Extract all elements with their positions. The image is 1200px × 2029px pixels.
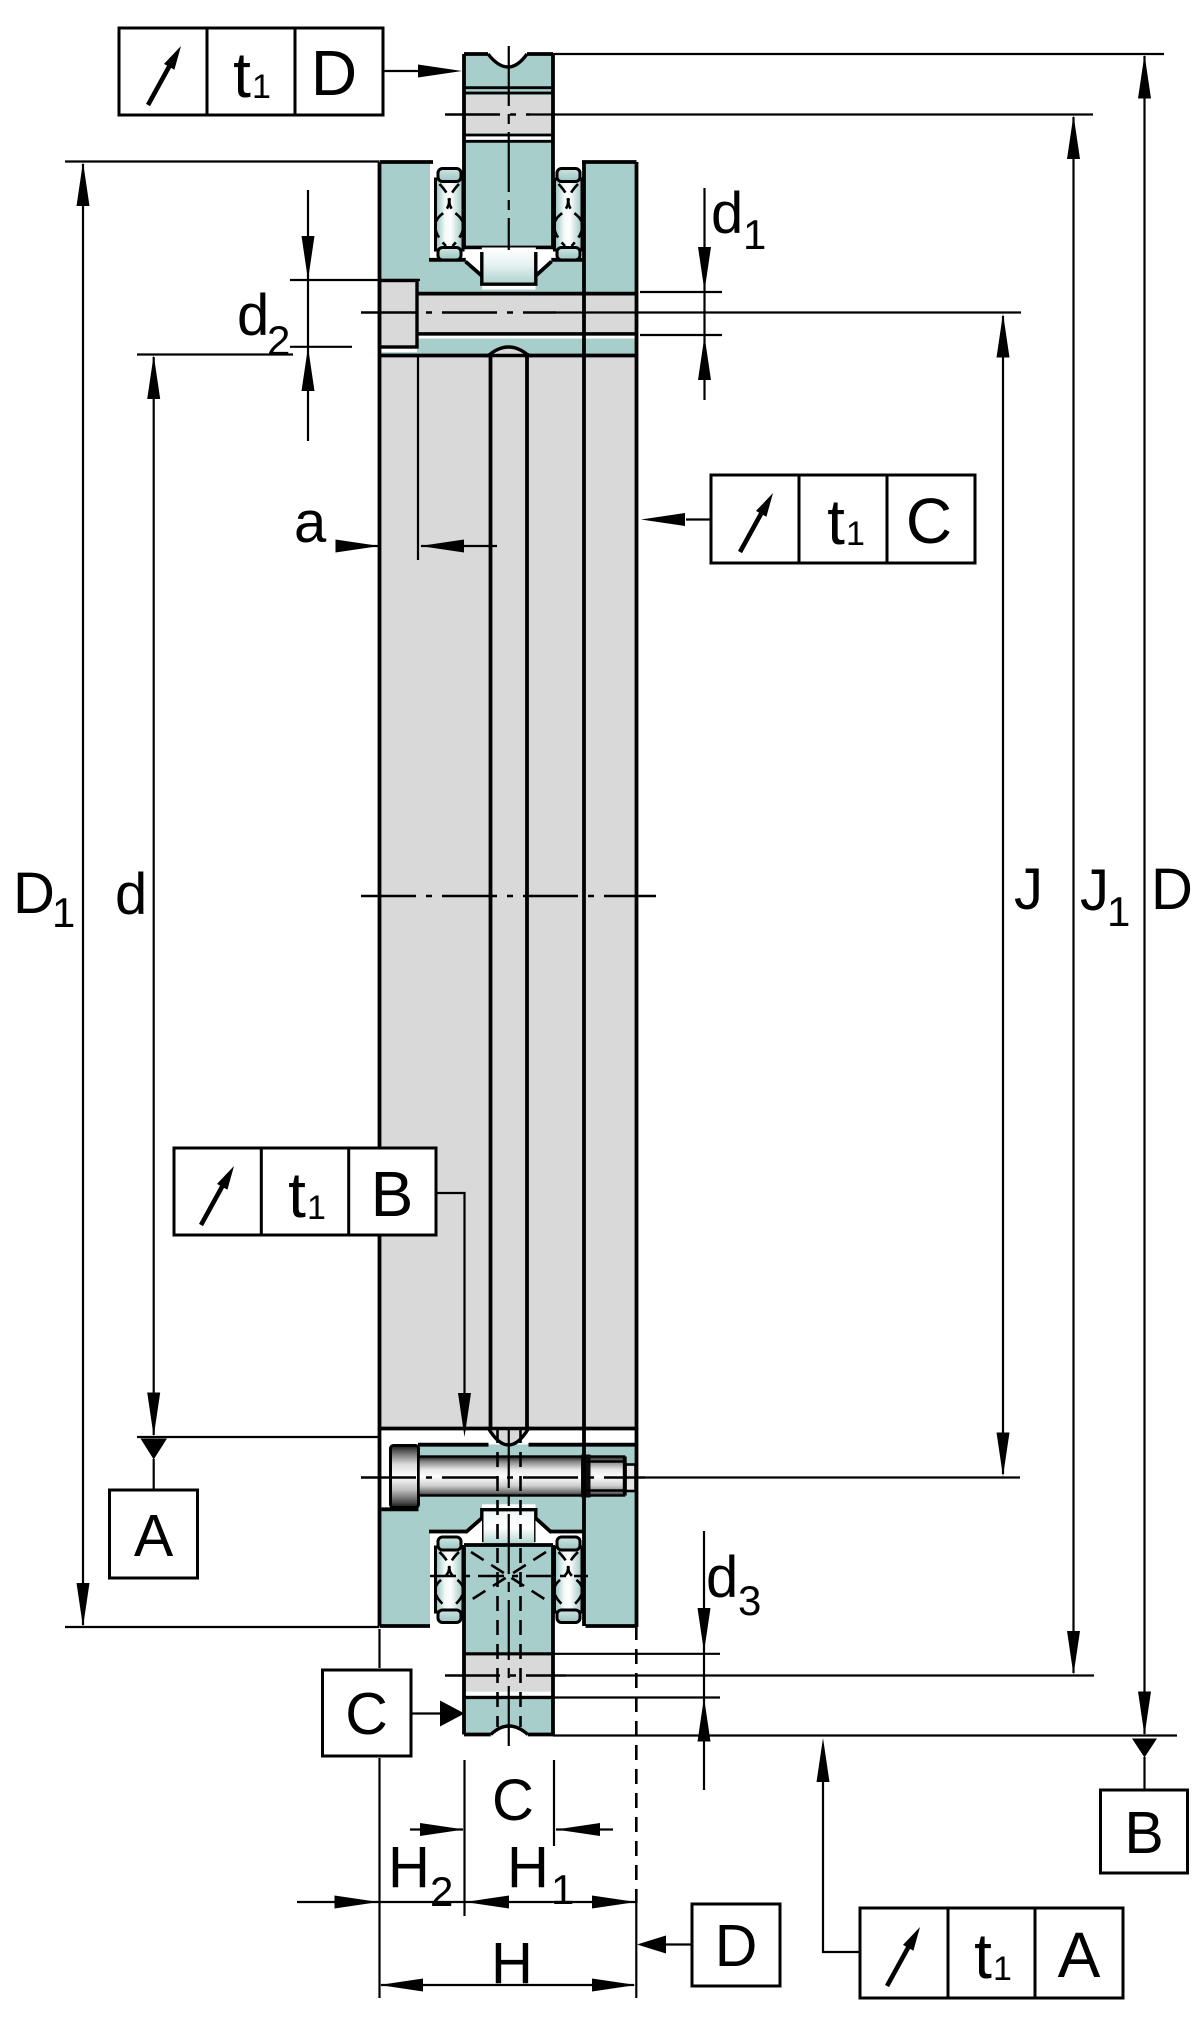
svg-text:B: B [1124, 1800, 1163, 1866]
svg-text:H: H [507, 1835, 549, 1900]
svg-text:2: 2 [267, 317, 290, 364]
svg-text:1: 1 [846, 515, 865, 553]
svg-text:1: 1 [993, 1950, 1012, 1988]
svg-text:B: B [371, 1158, 414, 1230]
svg-text:t: t [288, 1159, 306, 1231]
svg-text:C: C [906, 485, 952, 557]
svg-text:1: 1 [252, 68, 271, 106]
svg-text:C: C [492, 1768, 534, 1833]
svg-text:H: H [388, 1835, 430, 1900]
svg-text:H: H [491, 1931, 533, 1996]
svg-text:d: d [115, 862, 147, 927]
svg-text:D: D [311, 37, 357, 109]
svg-text:d: d [711, 181, 743, 246]
svg-text:C: C [345, 1681, 388, 1747]
svg-text:t: t [233, 39, 251, 111]
svg-text:1: 1 [551, 1866, 574, 1913]
svg-text:1: 1 [52, 889, 75, 936]
svg-text:d: d [237, 283, 269, 348]
svg-text:t: t [974, 1920, 992, 1992]
svg-text:D: D [1151, 857, 1193, 922]
svg-text:1: 1 [743, 211, 766, 258]
svg-text:J: J [1080, 858, 1109, 923]
svg-text:t: t [827, 486, 845, 558]
svg-text:D: D [715, 1913, 758, 1979]
svg-text:J: J [1014, 857, 1043, 922]
svg-text:2: 2 [430, 1868, 453, 1915]
svg-text:A: A [1058, 1919, 1101, 1991]
svg-text:1: 1 [307, 1189, 326, 1227]
svg-text:D: D [13, 861, 55, 926]
svg-text:a: a [294, 490, 327, 555]
svg-text:3: 3 [738, 1577, 761, 1624]
svg-text:A: A [134, 1503, 174, 1569]
svg-text:1: 1 [1107, 888, 1130, 935]
svg-text:d: d [706, 1545, 738, 1610]
